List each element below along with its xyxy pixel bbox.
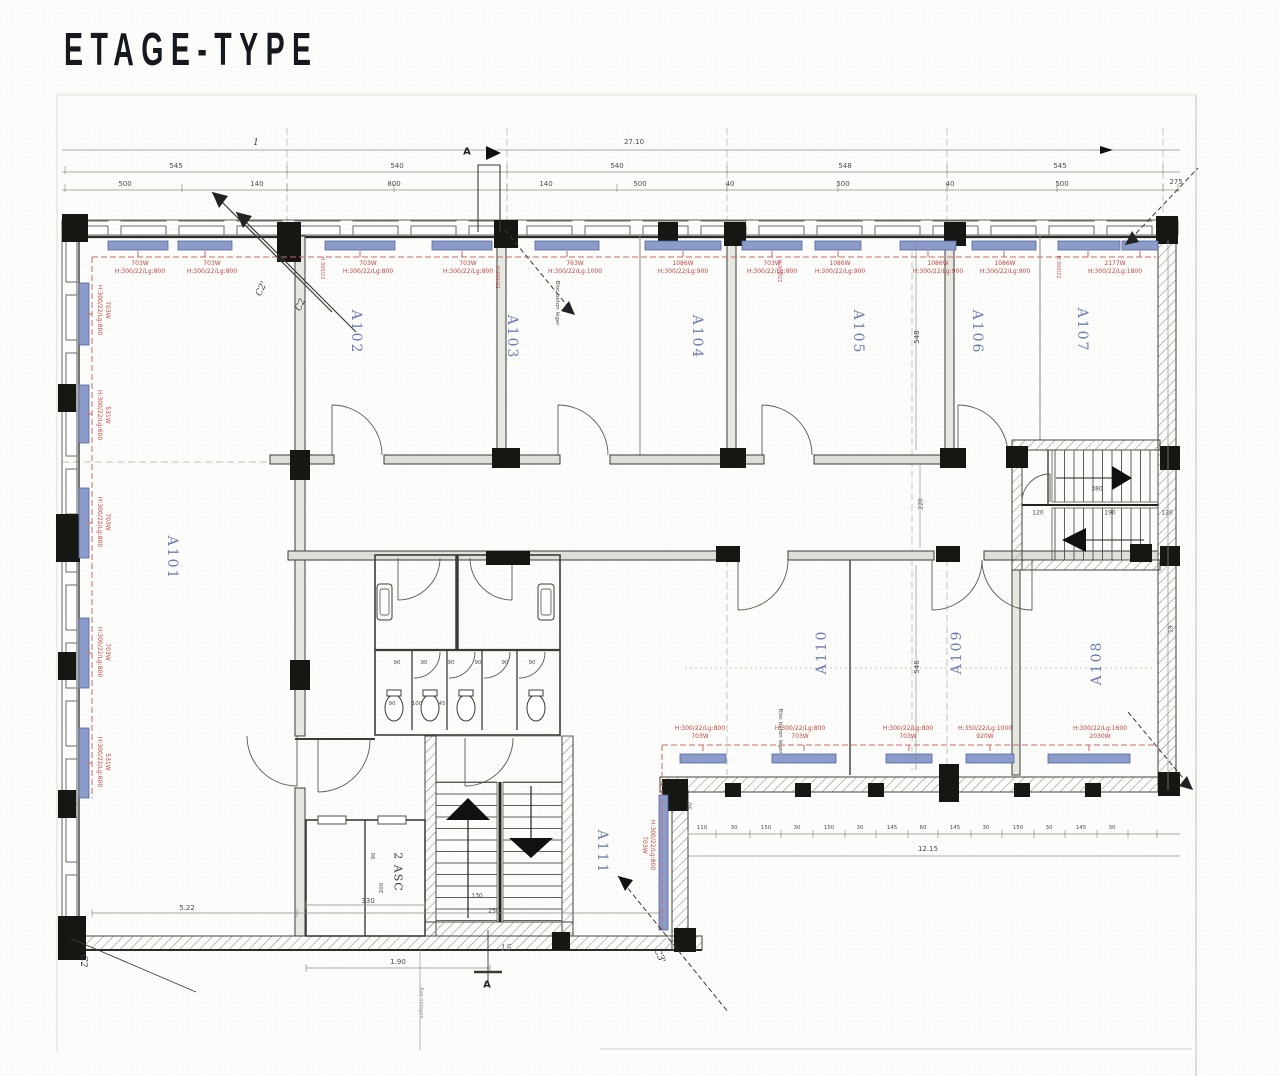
radiator-label: 703WH:300/22/Lg:800 — [187, 260, 237, 276]
radiator-label: H:300/22/Lg:800703W — [640, 820, 656, 870]
dim-chain: 110 — [697, 825, 708, 831]
radiator-label: 2177WH:300/22/Lg:1800 — [1088, 260, 1142, 276]
room-label-a101: A101 — [164, 536, 180, 581]
radiator-label: 703WH:300/22/Lg:800 — [343, 260, 393, 276]
dim-elev-width: 330 — [361, 897, 374, 905]
radiator-label: 1086WH:300/22/Lg:900 — [913, 260, 963, 276]
riser-tag: H:300/22 — [1055, 255, 1061, 278]
dim-bay: 545 — [169, 162, 182, 170]
dim-wc-sub: 100 — [412, 701, 423, 707]
dim-chain: 145 — [950, 825, 961, 831]
dim-546: 546 — [913, 660, 921, 673]
material-note: Bloc béton léger — [554, 280, 560, 325]
dim-548: 548 — [913, 330, 921, 343]
dim-sub: 500 — [633, 180, 646, 188]
room-label-a105: A105 — [850, 310, 866, 355]
radiator-strips — [79, 241, 1158, 930]
dim-sub: 275 — [1169, 178, 1182, 186]
dim-wc: 90 — [448, 660, 455, 666]
columns — [56, 214, 1180, 960]
elevator-shaft — [295, 739, 425, 936]
elevator-label: 2 ASC — [392, 852, 405, 891]
dim-chain: 30 — [983, 825, 990, 831]
dim-chain: 150 — [761, 825, 772, 831]
dim-sub: 800 — [387, 180, 400, 188]
dim-stair: 130 — [471, 893, 482, 900]
dim-stair2: 120 — [1032, 510, 1043, 517]
dim-total-bottom: 12.15 — [918, 845, 938, 853]
riser-tag: H:300/22 — [776, 259, 782, 282]
room-label-a111: A111 — [594, 830, 610, 875]
material-note: Bloc béton léger — [777, 708, 783, 753]
toilet-fixtures — [385, 690, 545, 721]
section-label-a-top: A — [463, 147, 471, 158]
outer-walls — [62, 220, 1178, 950]
axis-note: Axe mitoyen — [418, 987, 424, 1018]
radiator-label: 531WH:300/22/Lg:600 — [95, 390, 111, 440]
dim-sub: 500 — [1055, 180, 1068, 188]
dim-wc: 90 — [502, 660, 509, 666]
dim-wc: 90 — [394, 660, 401, 666]
radiator-label: 703WH:300/22/Lg:800 — [115, 260, 165, 276]
dim-sub: 500 — [118, 180, 131, 188]
room-label-a102: A102 — [348, 310, 364, 355]
radiator-label: 531WH:300/22/Lg:600 — [95, 737, 111, 787]
room-label-a103: A103 — [504, 315, 520, 360]
dim-stair2: 380 — [1091, 486, 1102, 493]
radiator-label: 703WH:300/22/Lg:800 — [95, 627, 111, 677]
radiator-label: 703WH:300/22/Lg:800 — [95, 497, 111, 547]
radiator-label: H:350/22/Lg:1000920W — [958, 725, 1012, 741]
dim-sub: 140 — [539, 180, 552, 188]
dim-total-width: 27.10 — [624, 138, 644, 146]
dim-wc: 90 — [421, 660, 428, 666]
dim-stair2: 120 — [1161, 510, 1172, 517]
dim-wc: 90 — [475, 660, 482, 666]
dim-stair2: 190 — [1104, 510, 1115, 517]
section-label-c2c: C2 — [78, 955, 88, 968]
dim-chain: 30 — [1046, 825, 1053, 831]
dim-chain: 30 — [857, 825, 864, 831]
room-label-a104: A104 — [689, 315, 705, 360]
radiator-label: H:300/22/Lg:800703W — [675, 725, 725, 741]
dim-chain: 30 — [1109, 825, 1116, 831]
radiator-label: 703WH:300/22/Lg:800 — [443, 260, 493, 276]
dim-sub: 40 — [946, 180, 955, 188]
interior-walls — [270, 236, 1158, 936]
dim-bay: 540 — [610, 162, 623, 170]
dim-bay: 545 — [1053, 162, 1066, 170]
dim-stair: 250 — [488, 908, 499, 915]
room-label-a106: A106 — [969, 310, 985, 355]
dim-sub: 140 — [250, 180, 263, 188]
dim-wc-sub: 90 — [389, 701, 396, 707]
riser-tag: H:300/22 — [494, 265, 500, 288]
dim-elev: 200 — [379, 883, 385, 894]
section-arrows — [70, 146, 1198, 1050]
handwritten-note: 15 — [500, 944, 511, 954]
plan-drawing — [0, 0, 1280, 1076]
riser-tag: H:300/22 — [319, 256, 325, 279]
radiator-label: H:300/22/Lg:800703W — [883, 725, 933, 741]
dim-chain: 60 — [920, 825, 927, 831]
radiator-label: 703WH:300/22/Lg:800 — [747, 260, 797, 276]
dim-sub: 40 — [726, 180, 735, 188]
room-label-a108: A108 — [1089, 641, 1105, 686]
dim-chain: 145 — [1076, 825, 1087, 831]
dim-sub: 500 — [836, 180, 849, 188]
radiator-label: 763WH:300/22/Lg:1000 — [548, 260, 602, 276]
dim-19: 19 — [1168, 625, 1175, 633]
dim-chain: 30 — [731, 825, 738, 831]
scanned-floor-plan: ETAGE-TYPE — [0, 0, 1280, 1076]
section-label-a-bottom: A — [483, 980, 491, 991]
dim-left-width: 5.22 — [179, 904, 195, 912]
room-label-a110: A110 — [814, 630, 830, 675]
dim-chain: 150 — [824, 825, 835, 831]
radiator-label: 1086WH:300/22/Lg:900 — [658, 260, 708, 276]
dim-chain: 145 — [887, 825, 898, 831]
main-staircase — [425, 736, 573, 936]
dim-bay: 548 — [838, 162, 851, 170]
axis-label: 1 — [253, 138, 259, 148]
room-label-a109: A109 — [949, 630, 965, 675]
dim-bay: 540 — [390, 162, 403, 170]
heating-pipes — [86, 251, 1158, 930]
dim-door-width: 1.90 — [390, 958, 406, 966]
dim-50: 50 — [687, 802, 694, 810]
dim-elev: 90 — [371, 853, 377, 860]
room-label-a107: A107 — [1074, 308, 1090, 353]
dim-220: 220 — [918, 498, 925, 509]
dim-chain: 30 — [794, 825, 801, 831]
dim-chain: 150 — [1013, 825, 1024, 831]
dim-wc: 90 — [529, 660, 536, 666]
radiator-label: 703WH:300/22/Lg:800 — [95, 285, 111, 335]
dim-wc-sub: 45 — [439, 701, 446, 707]
radiator-label: 1086WH:300/22/Lg:900 — [980, 260, 1030, 276]
radiator-label: H:300/22/Lg:16002030W — [1073, 725, 1127, 741]
radiator-label: 1086WH:300/22/Lg:900 — [815, 260, 865, 276]
